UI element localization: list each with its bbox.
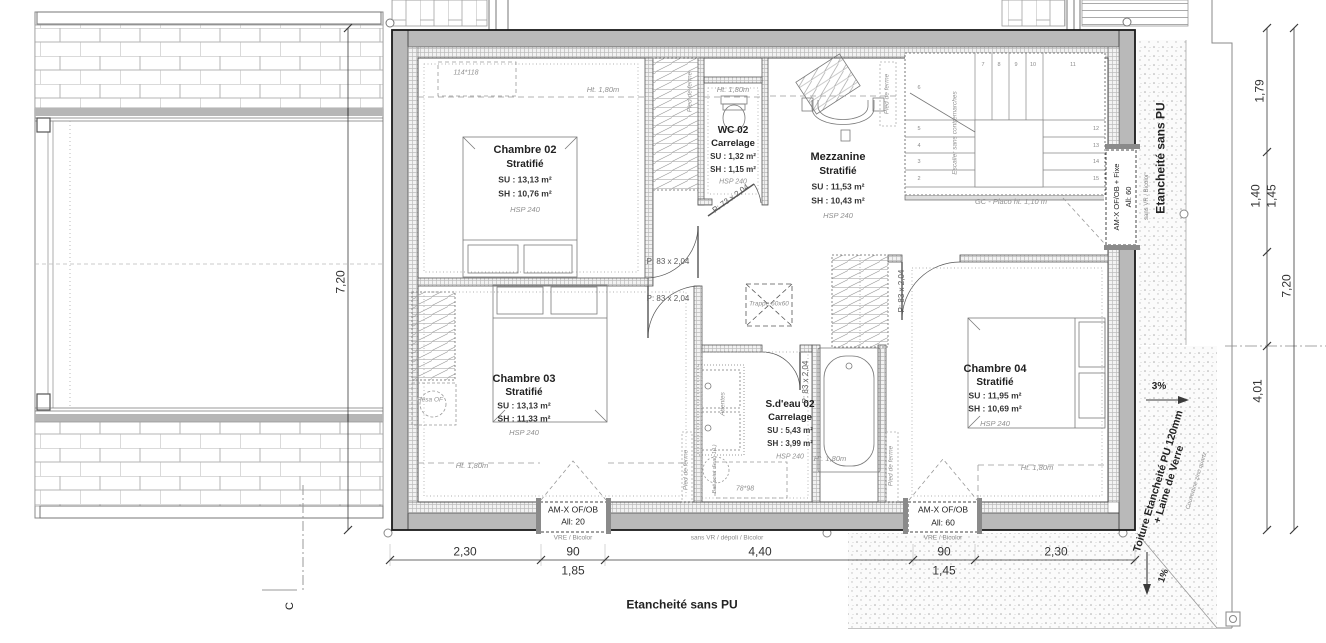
slope-3pct-label: 3% [1152,382,1166,393]
stair-step-4: 4 [917,143,920,149]
floor-plan-canvas: Chambre 02 Stratifié SU : 13,13 m² SH : … [0,0,1326,643]
room-hsp-chambre02: HSP 240 [510,206,540,214]
window1-sub: VRE / Bicolor [554,536,593,543]
room-su-chambre02: SU : 13,13 m² [498,176,551,185]
trappe-label: Trappe 60x60 [749,302,789,309]
room-finish-chambre03: Stratifié [505,388,542,399]
left-elevation [35,12,383,518]
door-label-p83-corridor: P: 83 x 2,04 [647,258,690,266]
room-su-sdeau02: SU : 5,43 m² [767,427,813,435]
dim-right-145: 1,45 [1266,184,1279,207]
room-sh-chambre02: SH : 10,76 m² [498,190,551,199]
window3-sill: All: 60 [1125,187,1133,208]
stair-step-12: 12 [1093,126,1099,132]
stair-step-8: 8 [997,62,1000,68]
room-finish-mezzanine: Stratifié [819,167,856,178]
window1-type: AM-X OF/OB [548,506,598,515]
dim-right-179: 1,79 [1254,79,1267,102]
doors-linework [646,184,960,390]
room-sh-sdeau02: SH : 3,99 m² [767,440,813,448]
plan-linework [0,0,1326,643]
staircase [905,53,1105,195]
door-label-p83-chambre04: P: 83 x 2,04 [898,270,906,313]
mid-window-sub: sans VR / dépoli / Bicolor [691,536,764,543]
stair-step-3: 3 [917,159,920,165]
resa-of-label: Résa OF [417,398,443,405]
pied-de-ferme-bottom-right: Pied de ferme [889,446,896,486]
stair-step-6: 6 [917,85,920,91]
knee-height-chambre03: Ht. 1,80m [456,462,489,470]
room-sh-wc02: SH : 1,15 m² [710,166,756,174]
dim-bottom-230a: 2,30 [453,546,476,559]
room-finish-wc02: Carrelage [711,139,755,149]
room-hsp-mezzanine: HSP 240 [823,212,853,220]
etancheite-right-note: Etancheité sans PU [1155,102,1168,213]
room-su-chambre03: SU : 13,13 m² [497,402,550,411]
room-finish-chambre04: Stratifié [976,378,1013,389]
stair-step-9: 9 [1014,62,1017,68]
room-su-chambre04: SU : 11,95 m² [969,392,1022,401]
knee-height-chambre04: Ht. 1,80m [1021,464,1054,472]
room-name-chambre02: Chambre 02 [494,145,557,157]
skylight-label-114x118: 114*118 [453,69,478,76]
room-finish-sdeau02: Carrelage [768,413,812,423]
room-hsp-sdeau02: HSP 240 [776,453,804,460]
room-name-chambre04: Chambre 04 [964,364,1027,376]
room-name-mezzanine: Mezzanine [810,152,865,164]
pied-de-ferme-bottom-left: Pied de ferme [684,450,691,490]
dim-bottom-230b: 2,30 [1044,546,1067,559]
dim-right-401: 4,01 [1252,379,1265,402]
attentes-label: Attentes [721,392,728,416]
stair-step-13: 13 [1093,143,1099,149]
window1-sill: All: 20 [561,518,585,527]
stair-step-10: 10 [1030,62,1036,68]
stair-step-7: 7 [981,62,984,68]
room-su-mezzanine: SU : 11,53 m² [812,183,865,192]
knee-height-chambre02: Ht. 1,80m [587,86,620,94]
room-hsp-chambre03: HSP 240 [509,429,539,437]
room-name-wc02: WC 02 [718,126,749,137]
stairs-note: Escalier sans contremarches [953,91,960,174]
room-sh-chambre04: SH : 10,69 m² [968,405,1021,414]
window2-type: AM-X OF/OB [918,506,968,515]
window3-sub: sans VR / Bicolor [1144,174,1150,220]
room-finish-chambre02: Stratifié [506,160,543,171]
dim-bottom-90b: 90 [937,546,950,559]
door-label-p83-sdeau: P: 83 x 2,04 [802,361,810,404]
dim-bottom-185: 1,85 [561,565,584,578]
room-sh-mezzanine: SH : 10,43 m² [811,197,864,206]
dim-bottom-90a: 90 [566,546,579,559]
pied-de-ferme-top-right: Pied de ferme [885,74,892,114]
window2-sub: VRE / Bicolor [924,536,963,543]
knee-height-sdeau02: Ht. 1,80m [814,455,847,463]
door-label-p83-chambre03: P: 83 x 2,04 [647,295,690,303]
point-eau-label: Bati point d'eau 1(L) [713,444,719,493]
stair-step-14: 14 [1093,159,1099,165]
stair-step-11: 11 [1070,62,1076,68]
room-name-chambre03: Chambre 03 [493,374,556,386]
stair-step-5: 5 [917,126,920,132]
gc-placo-note: GC - Placo ht. 1,10 m [975,198,1047,206]
dim-bottom-145: 1,45 [932,565,955,578]
knee-height-wc02: Ht. 1,80m [717,86,750,94]
pied-de-ferme-top-left: Pied de ferme [688,72,695,112]
dim-right-720: 7,20 [1281,274,1294,297]
skylight-label-78x98: 78*98 [736,485,754,492]
room-su-wc02: SU : 1,32 m² [710,153,756,161]
room-hsp-chambre04: HSP 240 [980,420,1010,428]
dim-left-720: 7,20 [335,270,348,293]
section-mark-c: C [285,602,297,610]
room-sh-chambre03: SH : 11,33 m² [498,415,551,424]
window3-type: AM-X OF/OB + Fixe [1113,164,1121,231]
stair-step-15: 15 [1093,176,1099,182]
dim-right-140: 1,40 [1250,184,1263,207]
etancheite-bottom-note: Etancheité sans PU [626,599,737,612]
dim-bottom-440: 4,40 [748,546,771,559]
window2-sill: All: 60 [931,519,955,528]
stair-step-2: 2 [917,176,920,182]
